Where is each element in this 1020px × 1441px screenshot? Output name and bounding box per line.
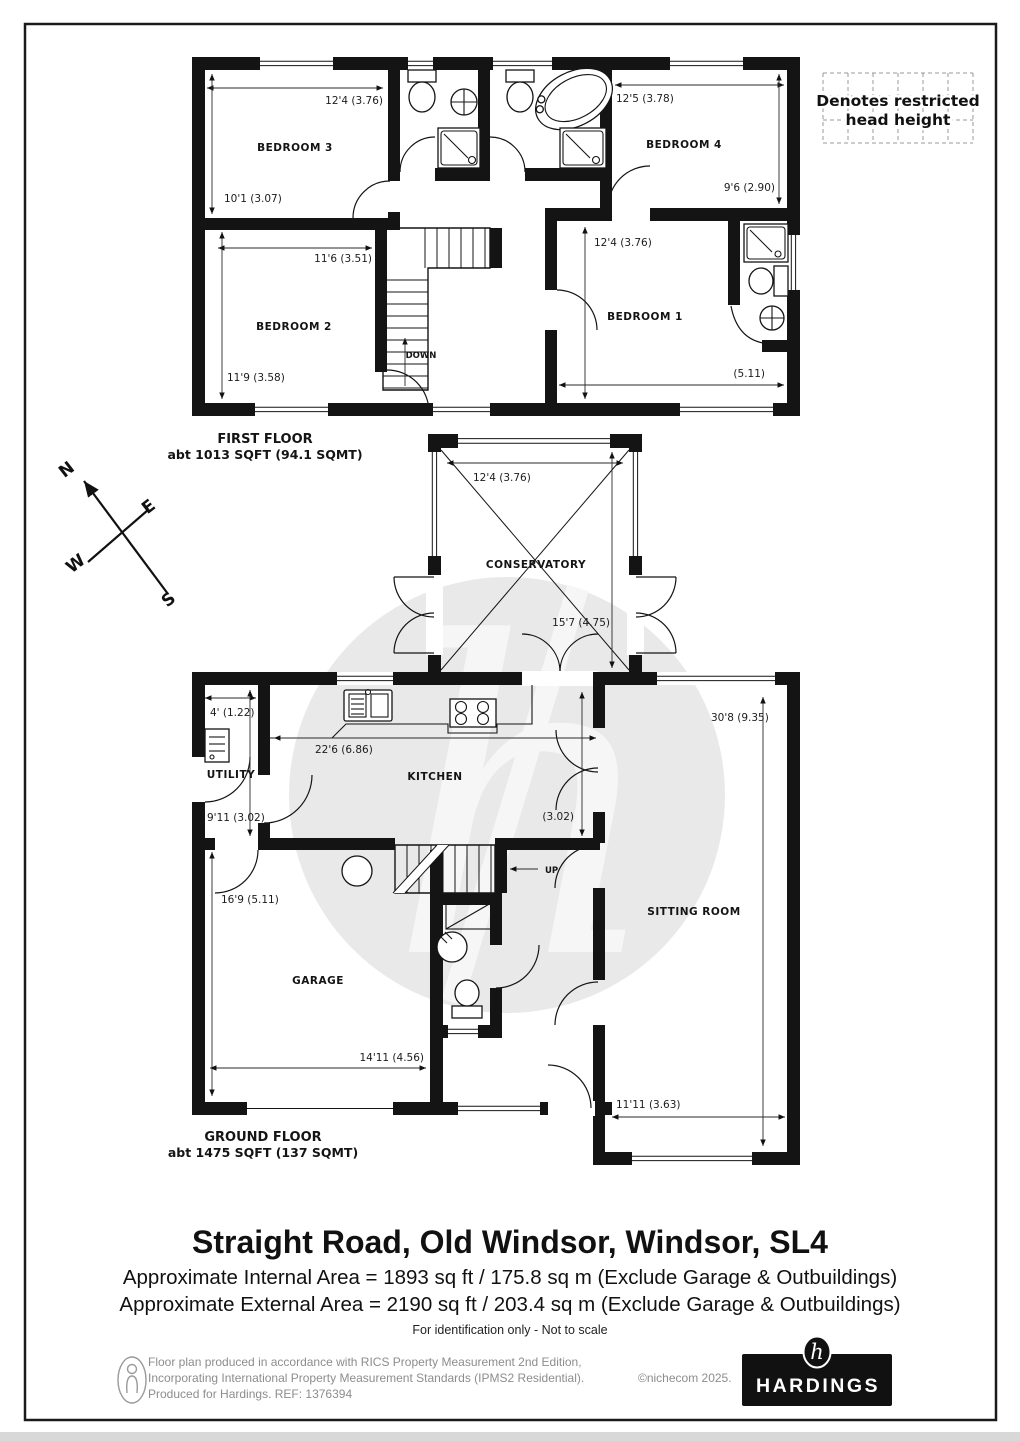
first-floor-windows [255,57,800,416]
hob-icon [450,699,496,727]
footer-line3: Produced for Hardings. REF: 1376394 [148,1387,352,1401]
dim-bedroom2-width: 11'6 (3.51) [314,253,372,265]
room-label-bedroom3: BEDROOM 3 [257,142,333,154]
shower-icon [744,224,788,262]
dim-bedroom2-depth: 11'9 (3.58) [227,372,285,384]
dim-conservatory-width: 12'4 (3.76) [473,472,531,484]
boiler-icon [205,729,229,762]
dim-garage-width: 14'11 (4.56) [359,1052,424,1064]
ground-floor-title: GROUND FLOOR [204,1130,321,1145]
basin-icon [451,89,477,115]
first-floor-walls [192,57,800,416]
room-label-bedroom4: BEDROOM 4 [646,139,722,151]
hardings-h-mark: h [810,1340,824,1364]
stairs-down-label: DOWN [406,351,437,361]
dim-bedroom4-depth: 9'6 (2.90) [724,182,775,194]
watermark: h [289,554,725,1054]
shower-icon [560,128,606,168]
internal-area-text: Approximate Internal Area = 1893 sq ft /… [123,1266,897,1289]
wc-toilet-icon [452,980,482,1018]
shower-icon [438,128,480,168]
stairs-up-label: UP [545,866,558,876]
hardings-wordmark: HARDINGS [756,1375,880,1397]
legend-text-line1: Denotes restricted [816,92,980,110]
bottom-strip [0,1432,1020,1441]
dim-conservatory-depth: 15'7 (4.75) [552,617,610,629]
dim-utility-depth: 9'11 (3.02) [207,812,265,824]
footer: Floor plan produced in accordance with R… [118,1337,892,1407]
person-icon [118,1357,146,1403]
title-block: Straight Road, Old Windsor, Windsor, SL4… [119,1224,900,1337]
compass-n: N [55,458,79,483]
restricted-head-height-legend: Denotes restricted head height [816,73,980,143]
room-label-sitting-room: SITTING ROOM [647,906,740,918]
first-floor-area: abt 1013 SQFT (94.1 SQMT) [167,447,362,462]
dim-sitting-width: 11'11 (3.63) [616,1099,681,1111]
floorplan-page: h [0,0,1020,1441]
first-floor-plan: DOWN 12'4 (3.76) 10'1 (3.07) 11'6 (3.51) [167,56,800,462]
dim-kitchen-depth: (3.02) [542,811,574,823]
kitchen-sink-icon [344,690,392,722]
room-label-garage: GARAGE [292,975,344,987]
compass-w: W [62,550,89,577]
first-floor-title: FIRST FLOOR [217,432,312,447]
toilet-icon [408,70,436,112]
room-label-utility: UTILITY [207,769,255,781]
ground-floor-area: abt 1475 SQFT (137 SQMT) [168,1145,358,1160]
footer-line1: Floor plan produced in accordance with R… [148,1355,582,1369]
wc-basin-icon [437,932,467,962]
toilet-icon [506,70,534,112]
dim-bedroom3-width: 12'4 (3.76) [325,95,383,107]
compass-s: S [158,588,180,611]
room-label-kitchen: KITCHEN [407,771,462,783]
dim-utility-width: 4' (1.22) [210,707,254,719]
toilet-icon [749,266,788,296]
dim-bedroom1-width: (5.11) [733,368,765,380]
disclaimer-text: For identification only - Not to scale [412,1323,607,1337]
copyright-text: ©nichecom 2025. [638,1371,732,1385]
room-label-bedroom2: BEDROOM 2 [256,321,332,333]
dim-kitchen-width: 22'6 (6.86) [315,744,373,756]
footer-line2: Incorporating International Property Mea… [148,1371,584,1385]
dim-bedroom3-depth: 10'1 (3.07) [224,193,282,205]
dim-garage-depth: 16'9 (5.11) [221,894,279,906]
legend-text-line2: head height [846,111,951,129]
external-area-text: Approximate External Area = 2190 sq ft /… [119,1293,900,1316]
property-address: Straight Road, Old Windsor, Windsor, SL4 [192,1224,828,1260]
basin-icon [760,306,784,330]
room-label-bedroom1: BEDROOM 1 [607,311,683,323]
hardings-logo: h HARDINGS [742,1337,892,1407]
dim-sitting-depth: 30'8 (9.35) [711,712,769,724]
room-label-conservatory: CONSERVATORY [486,559,586,571]
dim-bedroom1-depth: 12'4 (3.76) [594,237,652,249]
tank-icon [342,856,372,886]
first-floor-stairs: DOWN [383,228,490,390]
compass-icon: N E W S [55,458,180,612]
dim-bedroom4-width: 12'5 (3.78) [616,93,674,105]
